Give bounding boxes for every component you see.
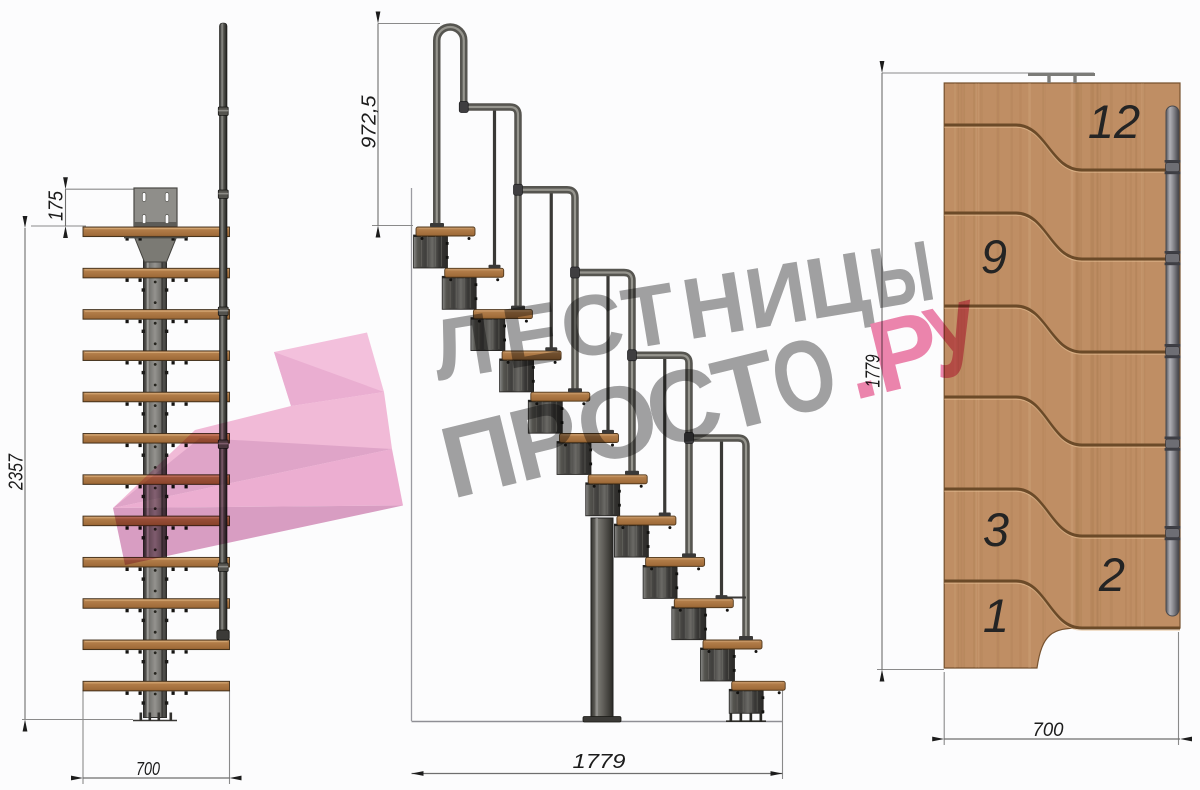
svg-text:972,5: 972,5 — [359, 95, 381, 149]
svg-text:700: 700 — [1033, 720, 1064, 741]
svg-text:12: 12 — [1088, 95, 1140, 148]
svg-text:2357: 2357 — [6, 453, 28, 491]
svg-text:700: 700 — [136, 759, 160, 779]
svg-text:175: 175 — [46, 190, 68, 221]
svg-text:1: 1 — [983, 589, 1009, 642]
svg-text:9: 9 — [981, 230, 1007, 283]
svg-text:1779: 1779 — [573, 751, 626, 773]
svg-text:2: 2 — [1098, 548, 1125, 601]
svg-text:3: 3 — [983, 503, 1009, 556]
